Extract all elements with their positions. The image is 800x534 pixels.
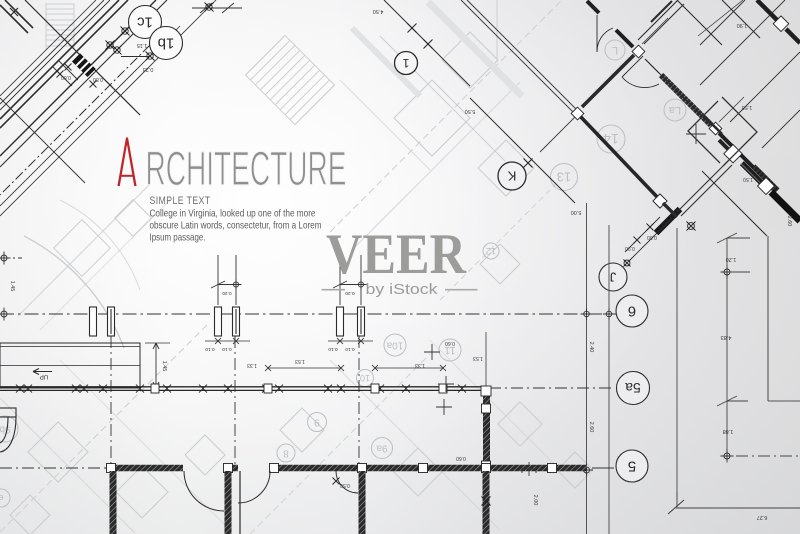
svg-text:5.00: 5.00 [571, 209, 582, 215]
svg-text:0.90: 0.90 [625, 245, 635, 251]
svg-text:1c: 1c [137, 14, 153, 31]
svg-text:UP: UP [39, 373, 48, 380]
svg-text:0.10: 0.10 [222, 346, 232, 352]
svg-text:by iStock: by iStock [366, 282, 439, 298]
svg-text:8: 8 [283, 448, 289, 459]
svg-text:0.80: 0.80 [93, 76, 103, 82]
svg-text:6: 6 [628, 303, 636, 320]
svg-text:0.60: 0.60 [456, 455, 466, 461]
svg-text:2.40: 2.40 [588, 342, 594, 353]
svg-text:9: 9 [314, 417, 320, 428]
svg-text:VEER: VEER [326, 223, 467, 286]
svg-text:e: e [0, 493, 4, 503]
svg-text:L: L [612, 44, 618, 56]
svg-text:0.20: 0.20 [222, 290, 232, 296]
svg-text:La: La [668, 104, 681, 116]
svg-text:1.45: 1.45 [161, 361, 167, 372]
svg-text:2.60: 2.60 [588, 422, 594, 433]
svg-text:0.10: 0.10 [345, 346, 355, 352]
svg-text:0.10: 0.10 [328, 346, 338, 352]
svg-text:obscure Latin words, consectet: obscure Latin words, consectetur, from a… [150, 221, 322, 232]
svg-text:1.50: 1.50 [743, 176, 753, 182]
svg-text:0.10: 0.10 [205, 346, 215, 352]
svg-text:1.50: 1.50 [742, 104, 753, 110]
svg-text:2.60: 2.60 [786, 216, 792, 227]
svg-text:1.53: 1.53 [473, 355, 483, 361]
svg-text:10: 10 [360, 373, 370, 383]
svg-text:1.20: 1.20 [726, 256, 737, 262]
svg-text:1b: 1b [158, 35, 175, 52]
svg-text:5: 5 [628, 458, 636, 475]
svg-text:1.15: 1.15 [137, 42, 148, 48]
svg-text:0.60: 0.60 [61, 74, 71, 80]
svg-text:1.45: 1.45 [9, 281, 15, 292]
svg-text:K: K [507, 169, 516, 184]
svg-text:RCHITECTURE: RCHITECTURE [146, 143, 347, 196]
svg-text:13: 13 [557, 170, 571, 185]
svg-text:4.83: 4.83 [721, 334, 732, 340]
svg-text:6.27: 6.27 [757, 514, 768, 520]
svg-text:5.50: 5.50 [465, 108, 476, 114]
svg-text:J: J [610, 270, 617, 285]
svg-text:Ipsum passage.: Ipsum passage. [150, 233, 206, 244]
svg-text:0.60: 0.60 [445, 340, 455, 346]
svg-text:9b: 9b [0, 424, 11, 435]
svg-text:2.00: 2.00 [532, 495, 538, 506]
svg-text:10a: 10a [386, 340, 403, 351]
svg-text:5a: 5a [625, 380, 641, 396]
svg-text:1.88: 1.88 [723, 428, 734, 434]
svg-text:9a: 9a [376, 443, 388, 454]
svg-text:0.23: 0.23 [143, 66, 154, 72]
svg-text:1.90: 1.90 [737, 22, 748, 28]
svg-text:0.50: 0.50 [340, 482, 350, 488]
svg-text:4.50: 4.50 [373, 8, 384, 14]
svg-text:1.53: 1.53 [295, 358, 305, 364]
svg-text:SIMPLE TEXT: SIMPLE TEXT [150, 195, 211, 207]
svg-text:College in Virginia, looked up: College in Virginia, looked up one of th… [150, 209, 316, 220]
svg-text:12: 12 [486, 246, 496, 256]
svg-text:1.33: 1.33 [415, 362, 425, 368]
svg-text:0.20: 0.20 [345, 290, 355, 296]
svg-text:1.33: 1.33 [247, 362, 257, 368]
svg-text:1: 1 [402, 56, 409, 70]
